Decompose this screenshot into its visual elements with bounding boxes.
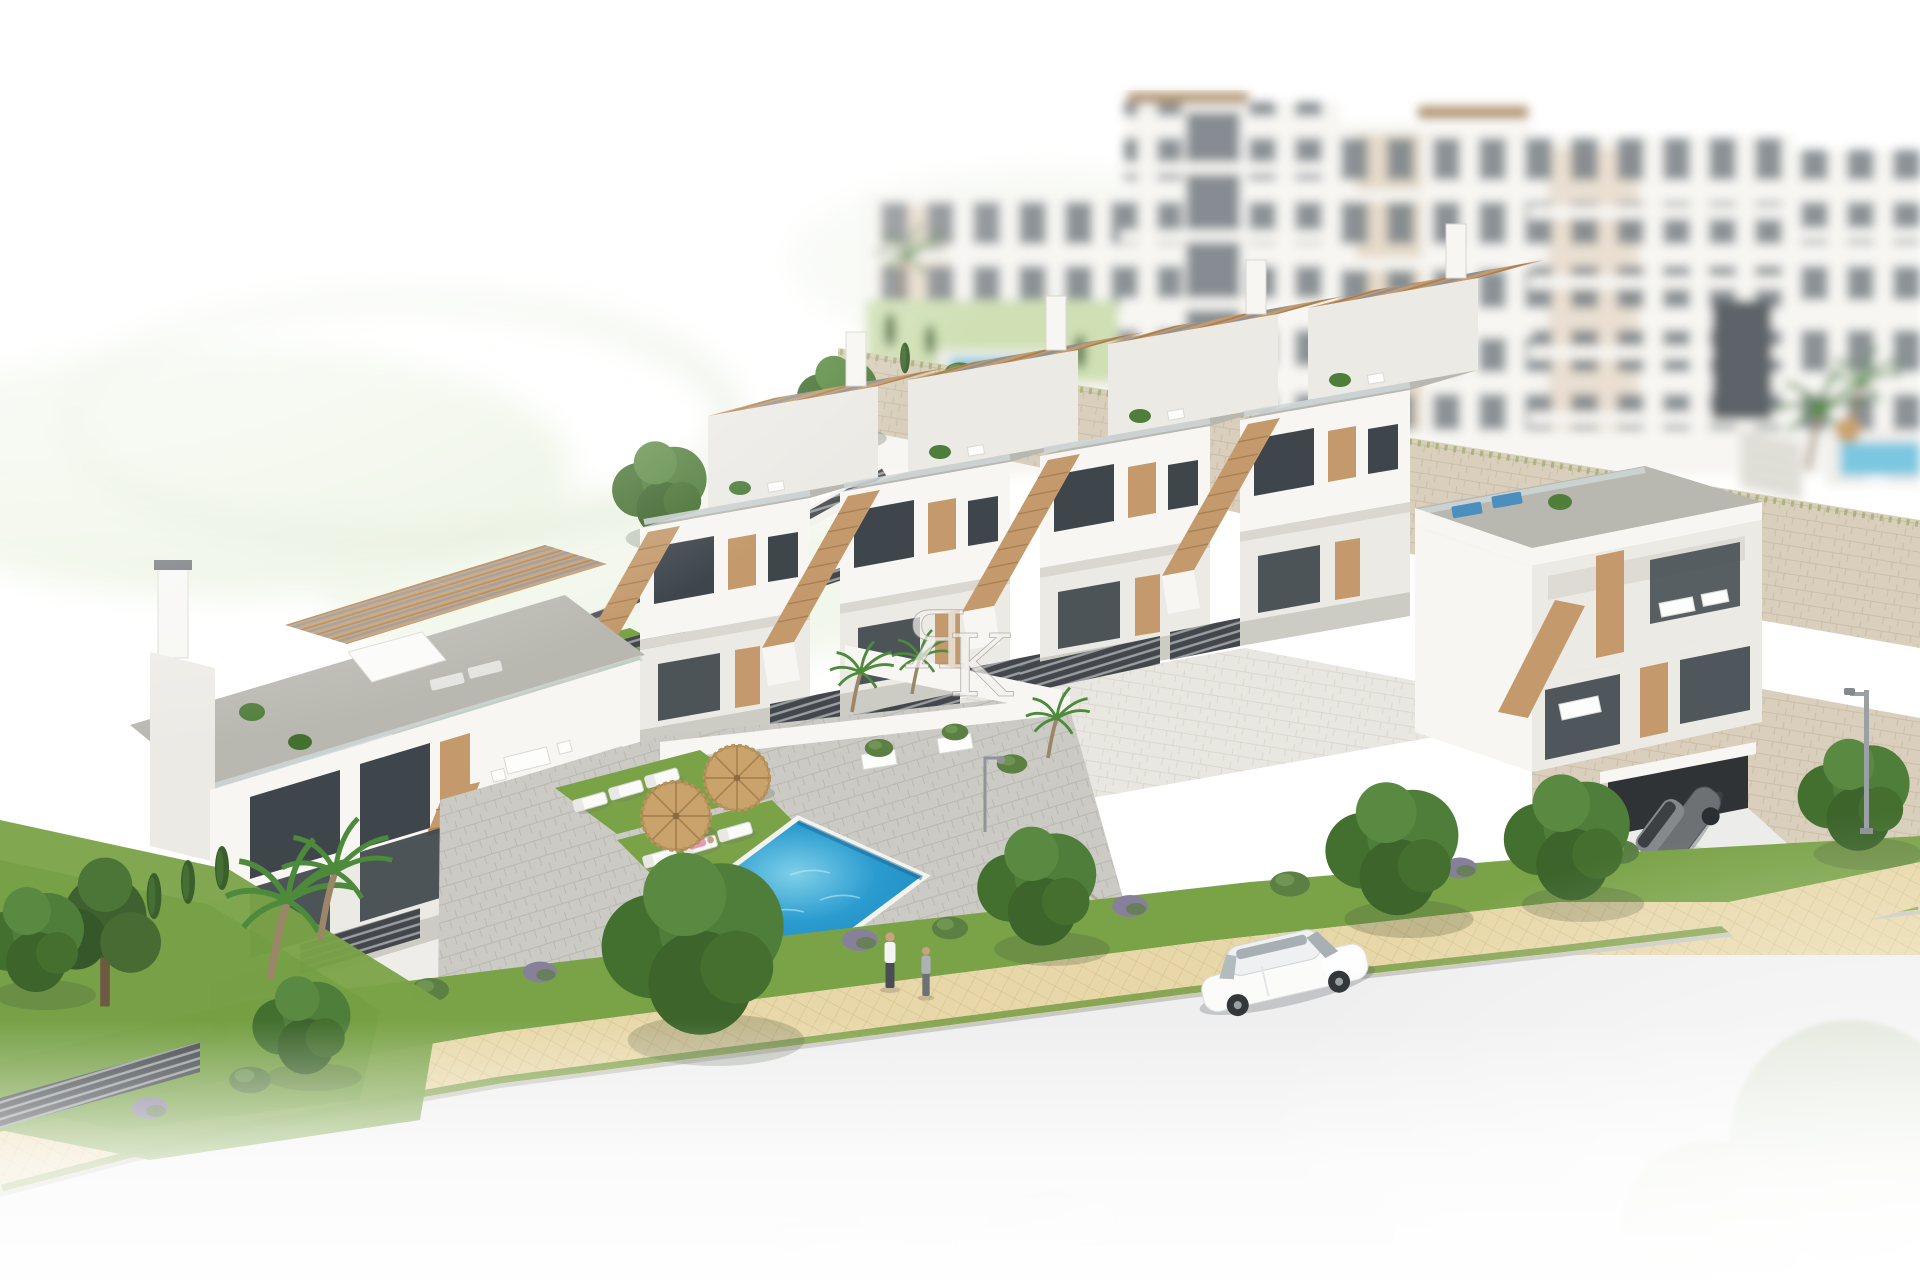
scene: Я K: [0, 0, 1920, 1280]
watermark-letter-k: K: [948, 617, 1014, 717]
background-pool-right: [1840, 442, 1920, 476]
fade-top: [0, 0, 1920, 90]
fade-bottom-right: [1100, 760, 1920, 1280]
render-canvas: Я K: [0, 0, 1920, 1280]
